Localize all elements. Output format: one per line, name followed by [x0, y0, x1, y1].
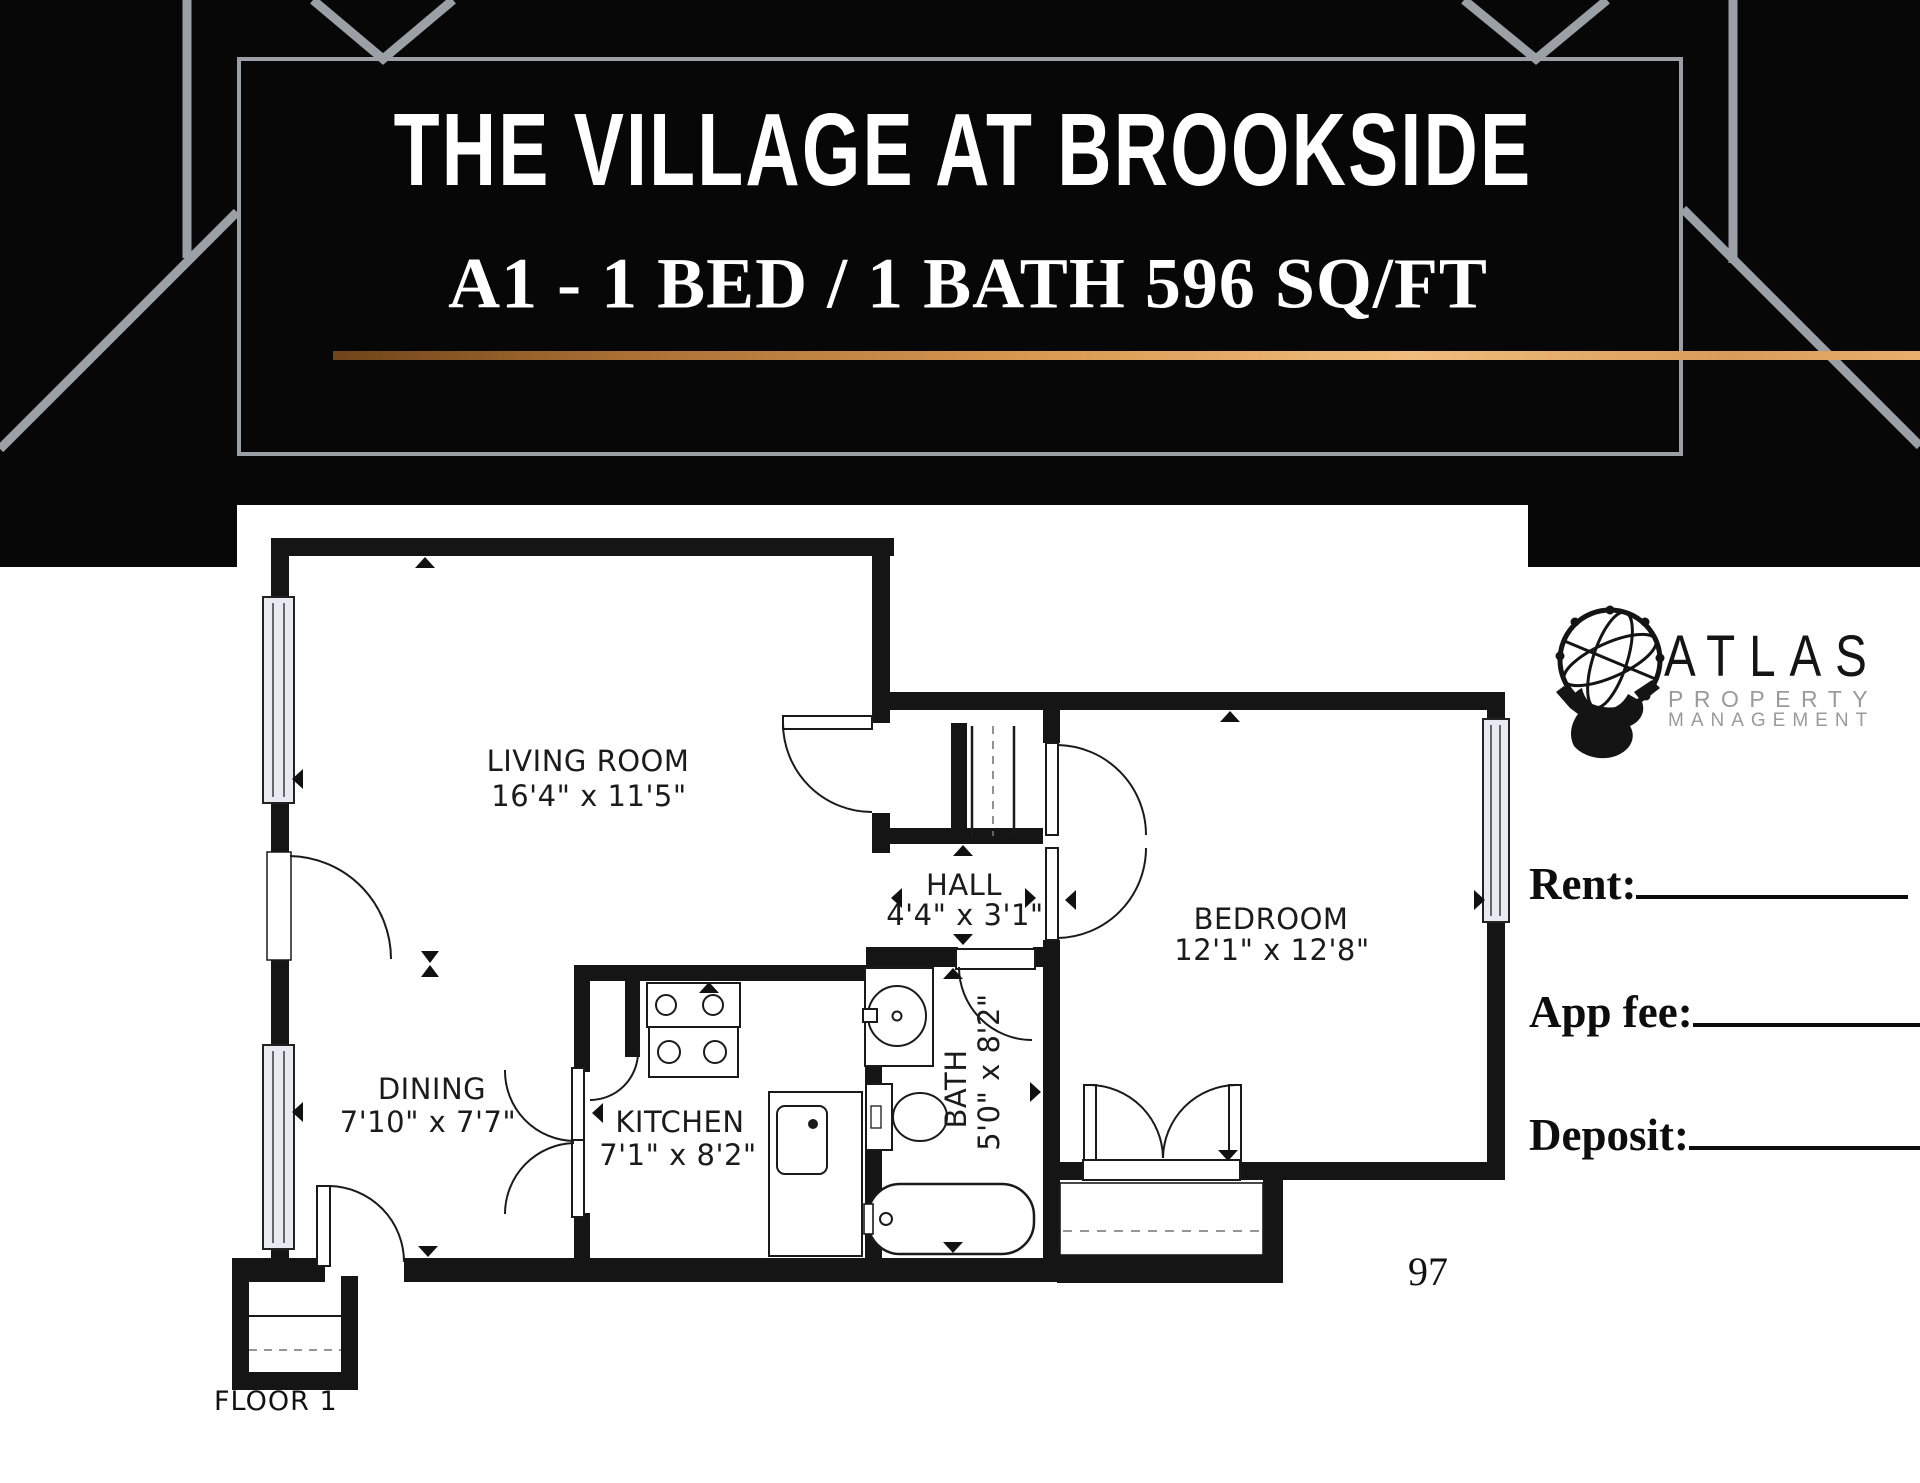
room-label-kitchen: KITCHEN: [615, 1105, 744, 1139]
bathtub: [864, 1184, 1034, 1254]
sliding-closet: [972, 726, 1014, 836]
deposit-field: Deposit:: [1529, 1108, 1920, 1161]
room-dims-dining: 7'10" x 7'7": [340, 1105, 516, 1139]
unit-subtitle: A1 - 1 BED / 1 BATH 596 SQ/FT: [448, 243, 1488, 326]
atlas-globe-icon: [1548, 596, 1672, 771]
floor-label: FLOOR 1: [214, 1386, 338, 1417]
window: [263, 597, 294, 803]
rent-label: Rent:: [1529, 859, 1636, 909]
room-dims-living: 16'4" x 11'5": [491, 779, 686, 813]
header-step-right: [1528, 505, 1920, 567]
window: [1483, 719, 1509, 922]
logo-brand-text: ATLAS: [1664, 623, 1881, 690]
kitchen-counter: [769, 1092, 862, 1256]
door-swing-arcs: [290, 723, 1236, 1262]
bath-sink: [863, 968, 933, 1066]
room-label-hall: HALL: [926, 868, 1002, 902]
toilet: [866, 1084, 947, 1150]
room-label-bedroom: BEDROOM: [1194, 902, 1349, 936]
stove: [647, 983, 740, 1077]
window: [263, 1045, 294, 1249]
bedroom-closet: [1060, 1160, 1263, 1255]
logo-property-text: PROPERTY: [1668, 686, 1878, 713]
door-leaves: [267, 716, 1241, 1266]
header-step-left: [0, 505, 237, 567]
room-label-dining: DINING: [378, 1072, 486, 1106]
gold-accent-line: [333, 351, 1920, 360]
floorplan-flyer: { "header": { "title": "THE VILLAGE AT B…: [0, 0, 1920, 1483]
rent-field: Rent:: [1529, 857, 1908, 910]
room-dims-hall: 4'4" x 3'1": [886, 898, 1044, 932]
deposit-blank-line[interactable]: [1689, 1108, 1920, 1150]
room-label-living: LIVING ROOM: [487, 744, 690, 778]
deposit-label: Deposit:: [1529, 1110, 1689, 1160]
logo-management-text: MANAGEMENT: [1668, 710, 1874, 732]
room-dims-bath: 5'0" x 8'2": [972, 993, 1006, 1151]
room-dims-bedroom: 12'1" x 12'8": [1174, 933, 1369, 967]
app-fee-blank-line[interactable]: [1693, 985, 1920, 1027]
property-title: THE VILLAGE AT BROOKSIDE: [394, 91, 1533, 209]
entry-steps: [249, 1316, 341, 1350]
app-fee-label: App fee:: [1529, 987, 1693, 1037]
unit-number: 97: [1408, 1248, 1448, 1295]
room-dims-kitchen: 7'1" x 8'2": [599, 1138, 757, 1172]
rent-blank-line[interactable]: [1636, 857, 1908, 899]
room-label-bath: BATH: [939, 1049, 973, 1128]
app-fee-field: App fee:: [1529, 985, 1920, 1038]
